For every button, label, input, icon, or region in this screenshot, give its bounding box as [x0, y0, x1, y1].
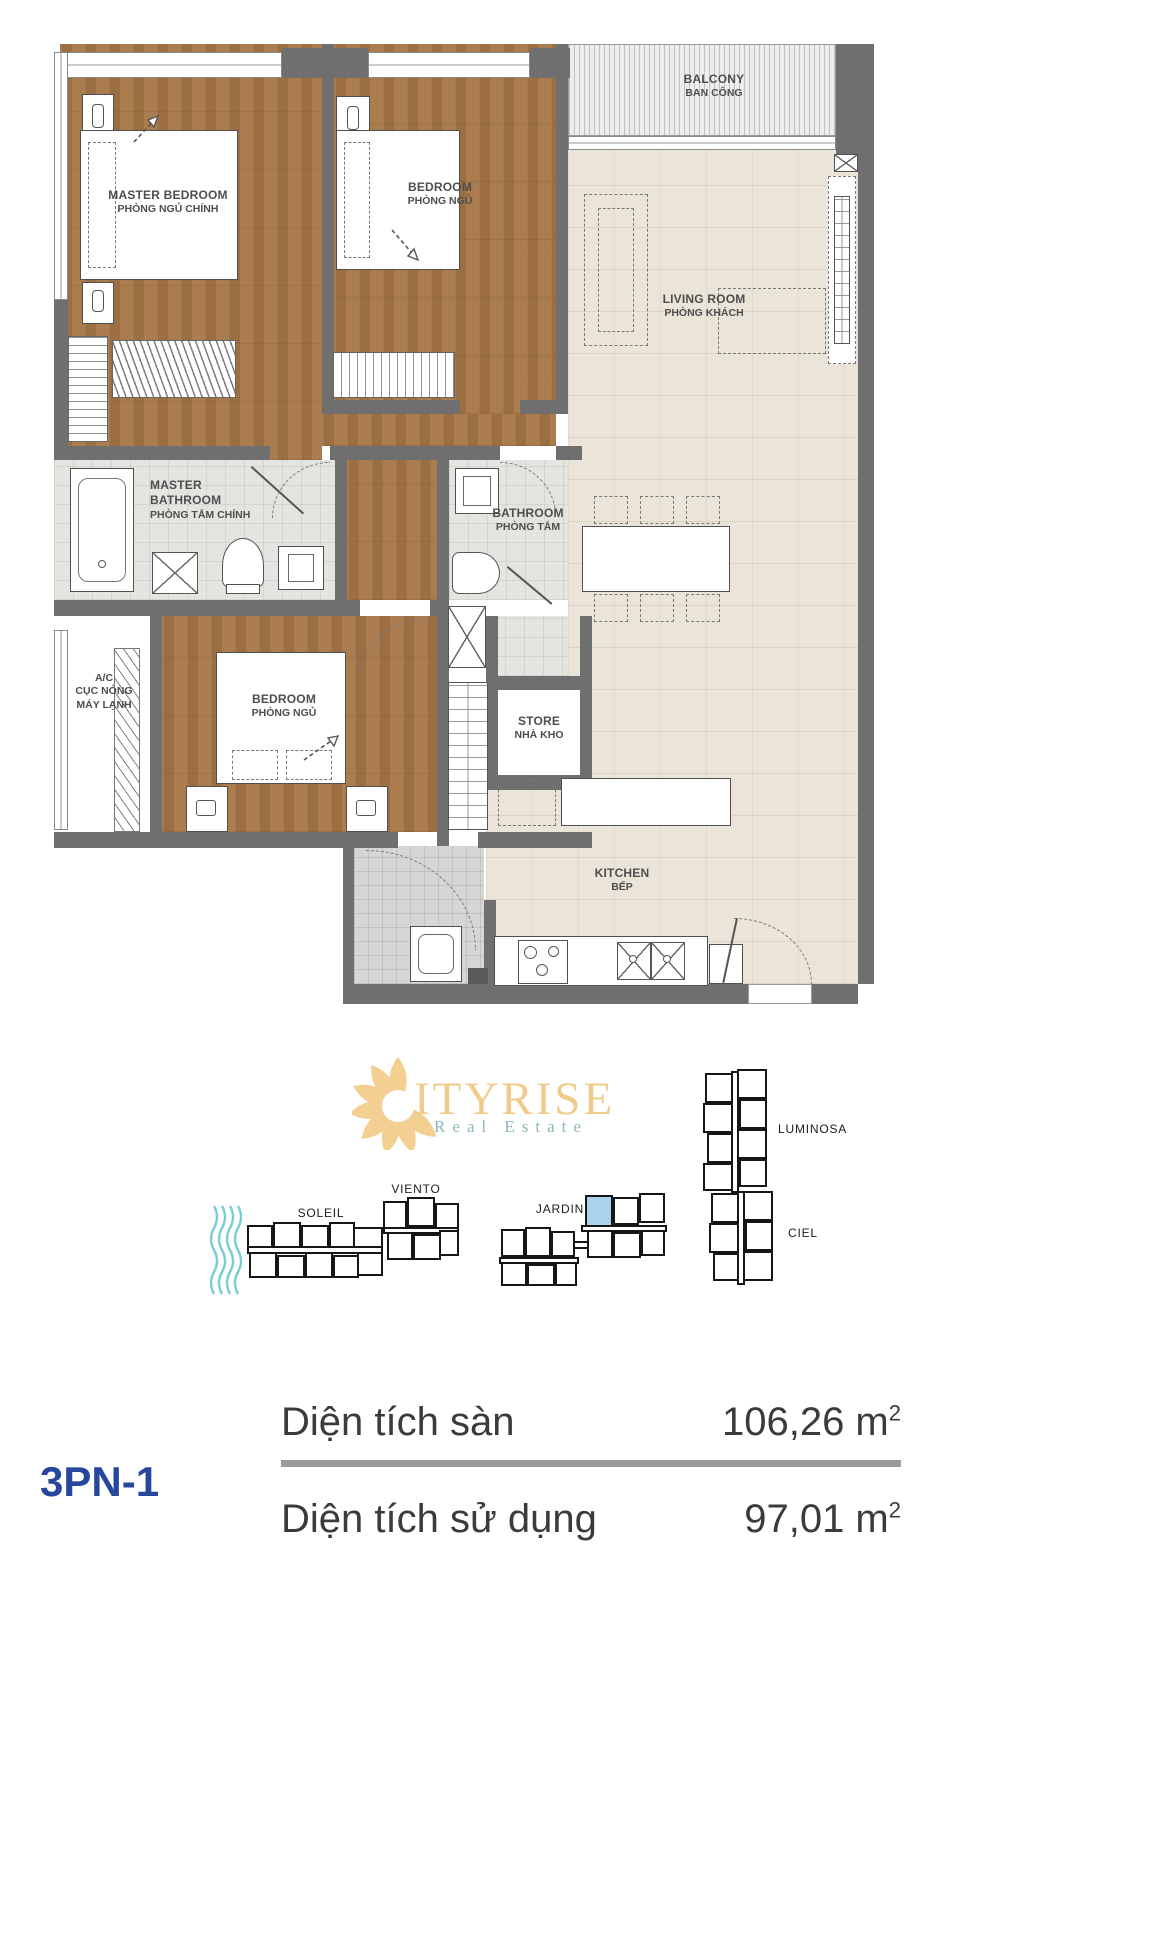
bed-pillow: [232, 750, 278, 780]
room-name: A/C: [75, 672, 132, 685]
building-label-ciel: CIEL: [788, 1226, 818, 1240]
room-name: KITCHEN: [595, 866, 650, 881]
wall: [486, 676, 592, 690]
balcony-sliding-door: [568, 136, 836, 150]
lamp-icon: [196, 800, 216, 816]
wall: [54, 600, 360, 616]
closet-ladder: [448, 682, 488, 830]
window-top-2: [368, 52, 530, 78]
laundry-tray: [448, 606, 486, 668]
dining-chair: [686, 496, 720, 524]
dining-chair: [640, 496, 674, 524]
wall: [520, 400, 568, 414]
room-name-vi: PHÒNG TẮM: [492, 521, 563, 534]
wardrobe: [333, 352, 455, 398]
dining-chair: [640, 594, 674, 622]
wall: [343, 848, 354, 984]
entry-threshold: [748, 984, 812, 1004]
room-name: BEDROOM: [252, 692, 317, 707]
wall: [322, 400, 460, 414]
area-label: Diện tích sử dụng: [281, 1497, 597, 1542]
area-value: 97,01 m2: [744, 1497, 901, 1542]
room-label-living-room: LIVING ROOM PHÒNG KHÁCH: [663, 292, 746, 321]
burner-icon: [536, 964, 548, 976]
window-left-2: [54, 630, 68, 830]
room-label-ac: A/C CỤC NÓNG MÁY LẠNH: [75, 672, 132, 712]
room-name-vi: MÁY LẠNH: [75, 699, 132, 712]
window-top-1: [60, 52, 282, 78]
building-label-viento: VIENTO: [391, 1182, 440, 1196]
building-jardin: [498, 1192, 668, 1288]
burner-icon: [548, 946, 559, 957]
door-swing-arrow: [128, 106, 168, 146]
room-name-vi: BAN CÔNG: [684, 87, 745, 100]
building-label-soleil: SOLEIL: [298, 1206, 345, 1220]
room-name-vi: BẾP: [595, 881, 650, 894]
door-swing-arrow: [386, 224, 426, 268]
room-name: BEDROOM: [408, 180, 473, 195]
lamp-icon: [92, 290, 104, 312]
room-name: MASTER: [150, 478, 250, 493]
area-row: Diện tích sàn 106,26 m2: [281, 1400, 901, 1446]
superscript: 2: [889, 1498, 901, 1523]
floorplan-sheet: MASTER BEDROOM PHÒNG NGỦ CHÍNH BEDROOM P…: [0, 0, 1168, 1954]
wall: [556, 446, 582, 460]
corridor-floor: [322, 414, 556, 446]
bed-pillows: [344, 142, 370, 258]
hall-strip-floor: [347, 460, 437, 600]
wall: [430, 600, 449, 616]
toilet-tank: [226, 584, 260, 594]
wall: [150, 616, 162, 832]
room-label-bedroom-top: BEDROOM PHÒNG NGỦ: [408, 180, 473, 209]
building-soleil: [246, 1220, 386, 1280]
wall: [54, 832, 398, 848]
logo-wordmark: ITYRISE: [414, 1076, 615, 1123]
meter-box: [468, 968, 488, 984]
room-name: MASTER BEDROOM: [108, 188, 227, 203]
unit-code: 3PN-1: [40, 1458, 159, 1506]
faucet-icon: [663, 955, 671, 963]
room-name: BALCONY: [684, 72, 745, 87]
room-label-kitchen: KITCHEN BẾP: [595, 866, 650, 895]
room-label-master-bedroom: MASTER BEDROOM PHÒNG NGỦ CHÍNH: [108, 188, 227, 217]
burner-icon: [524, 946, 537, 959]
building-luminosa-ciel: [702, 1068, 778, 1286]
room-name-vi: PHÒNG NGỦ: [252, 707, 317, 720]
dining-chair: [594, 496, 628, 524]
wall: [335, 460, 347, 600]
room-label-store: STORE NHÀ KHO: [515, 714, 564, 743]
divider: [281, 1460, 901, 1467]
room-name-vi: CỤC NÓNG: [75, 685, 132, 698]
sink-bowl: [463, 476, 491, 506]
washer-drum: [418, 934, 454, 974]
room-label-bedroom-bottom: BEDROOM PHÒNG NGỦ: [252, 692, 317, 721]
dining-chair: [686, 594, 720, 622]
door-swing-arrow: [300, 728, 346, 764]
faucet-icon: [629, 955, 637, 963]
room-name: BATHROOM: [150, 493, 250, 508]
dining-table: [582, 526, 730, 592]
wall: [54, 300, 68, 460]
bathroom-floor-ext: [486, 616, 580, 676]
lamp-icon: [347, 106, 359, 130]
room-name-vi: PHÒNG NGỦ CHÍNH: [108, 203, 227, 216]
fridge-space: [498, 780, 556, 826]
room-name-vi: NHÀ KHO: [515, 729, 564, 742]
sink-bowl: [288, 554, 314, 582]
wall: [580, 616, 592, 790]
room-name: BATHROOM: [492, 506, 563, 521]
shelf-ladder: [834, 196, 850, 344]
wardrobe: [68, 336, 108, 442]
wall: [54, 446, 270, 460]
wall: [478, 832, 592, 848]
wardrobe: [112, 340, 236, 398]
drain-icon: [98, 560, 106, 568]
superscript: 2: [889, 1401, 901, 1426]
ac-unit-box: [834, 154, 858, 172]
room-name-vi: PHÒNG NGỦ: [408, 195, 473, 208]
kitchen-island: [561, 778, 731, 826]
highlighted-unit: [586, 1196, 612, 1226]
toilet: [452, 552, 500, 594]
river-waves-icon: [210, 1204, 242, 1300]
room-name: LIVING ROOM: [663, 292, 746, 307]
dining-chair: [594, 594, 628, 622]
area-row: Diện tích sử dụng 97,01 m2: [281, 1497, 901, 1543]
area-label: Diện tích sàn: [281, 1400, 514, 1445]
room-label-balcony: BALCONY BAN CÔNG: [684, 72, 745, 101]
lamp-icon: [92, 104, 104, 128]
room-name: STORE: [515, 714, 564, 729]
wall: [556, 44, 568, 414]
room-label-bathroom: BATHROOM PHÒNG TẮM: [492, 506, 563, 535]
logo-tagline: Real Estate: [434, 1118, 588, 1135]
building-viento: [380, 1196, 462, 1268]
window-left-1: [54, 52, 68, 300]
lamp-icon: [356, 800, 376, 816]
wall: [330, 446, 500, 460]
building-label-luminosa: LUMINOSA: [778, 1122, 847, 1136]
wall: [858, 110, 874, 984]
area-value: 106,26 m2: [722, 1400, 901, 1445]
sofa-cushions: [598, 208, 634, 332]
wall: [812, 984, 858, 1004]
room-name-vi: PHÒNG KHÁCH: [663, 307, 746, 320]
shower-tray: [152, 552, 198, 594]
room-label-master-bathroom: MASTER BATHROOM PHÒNG TẮM CHÍNH: [150, 478, 250, 522]
wall: [343, 984, 748, 1004]
room-name-vi: PHÒNG TẮM CHÍNH: [150, 509, 250, 522]
toilet: [222, 538, 264, 588]
